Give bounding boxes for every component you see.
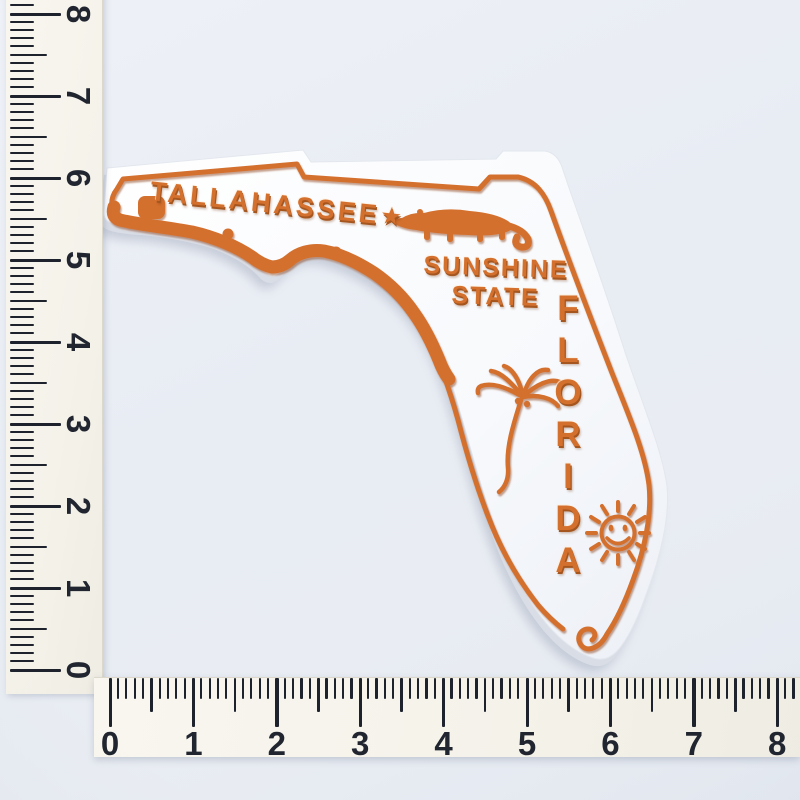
ruler-tick (10, 423, 61, 426)
ruler-tick (10, 570, 34, 572)
ruler-tick (10, 603, 34, 605)
ruler-tick (10, 619, 34, 621)
ruler-tick (10, 488, 34, 490)
ruler-tick (10, 119, 34, 121)
ruler-tick (275, 678, 278, 727)
ruler-tick (559, 678, 561, 699)
coast-bump (390, 285, 401, 296)
ruler-tick (342, 678, 344, 699)
ruler-tick (10, 529, 34, 531)
ruler-tick (400, 678, 403, 712)
ruler-tick (10, 95, 61, 98)
ruler-tick (225, 678, 227, 699)
horizontal-ruler: 012345678 (94, 677, 800, 757)
ruler-tick (109, 678, 112, 727)
ruler-tick (10, 332, 34, 334)
ruler-number: 8 (61, 0, 95, 34)
state-name-letter: I (546, 456, 590, 498)
ruler-number: 0 (90, 727, 130, 761)
ruler-tick (10, 86, 34, 88)
ruler-tick (551, 678, 553, 699)
ruler-tick (417, 678, 419, 699)
ruler-tick (309, 678, 311, 699)
ruler-tick (10, 103, 34, 105)
ruler-tick (10, 54, 47, 57)
nickname-line-2: STATE (451, 281, 540, 313)
ruler-tick (10, 185, 34, 187)
ruler-tick (10, 390, 34, 392)
ruler-tick (150, 678, 153, 712)
ruler-tick (10, 447, 34, 449)
ruler-tick (467, 678, 469, 699)
ruler-number: 2 (257, 727, 297, 761)
ruler-number: 7 (61, 76, 95, 116)
photo-stage: TALLAHASSEE★ SUNSHINE STATE FLORIDA 8765… (0, 0, 800, 800)
ruler-tick (626, 678, 628, 699)
ruler-tick (10, 439, 34, 441)
ruler-tick (10, 595, 34, 597)
ruler-tick (259, 678, 261, 699)
ruler-tick (792, 678, 794, 699)
ruler-number: 1 (61, 568, 95, 608)
ruler-tick (134, 678, 136, 699)
ruler-tick (10, 267, 34, 269)
ruler-tick (159, 678, 161, 699)
ruler-tick (10, 201, 34, 203)
ruler-tick (526, 678, 529, 727)
ruler-tick (10, 554, 34, 556)
nickname-line-1: SUNSHINE (423, 251, 569, 285)
ruler-tick (367, 678, 369, 699)
state-name-letter: L (546, 330, 590, 372)
ruler-tick (10, 4, 34, 6)
state-name-letter: F (546, 288, 590, 330)
ruler-tick (334, 678, 336, 699)
ruler-tick (10, 37, 34, 39)
ruler-tick (734, 678, 737, 712)
ruler-number: 3 (61, 404, 95, 444)
ruler-tick (10, 168, 34, 170)
ruler-tick (242, 678, 244, 699)
ruler-tick (200, 678, 202, 699)
ruler-tick (10, 291, 34, 293)
ruler-tick (10, 308, 34, 310)
ruler-tick (567, 678, 570, 712)
ruler-tick (409, 678, 411, 699)
ruler-number: 0 (61, 650, 95, 690)
ruler-tick (634, 678, 636, 699)
ruler-tick (10, 537, 34, 539)
ruler-tick (584, 678, 586, 699)
ruler-tick (392, 678, 394, 699)
ruler-tick (175, 678, 177, 699)
ruler-number: 3 (340, 727, 380, 761)
ruler-tick (509, 678, 511, 699)
ruler-tick (142, 678, 144, 699)
ruler-tick (125, 678, 127, 699)
ruler-tick (10, 652, 34, 654)
ruler-tick (659, 678, 661, 699)
ruler-tick (10, 275, 34, 277)
ruler-tick (767, 678, 769, 699)
coast-bump (223, 229, 234, 240)
ruler-number: 5 (61, 240, 95, 280)
ruler-tick (292, 678, 294, 699)
state-name-letter: R (546, 414, 590, 456)
ruler-tick (717, 678, 719, 699)
ruler-tick (10, 127, 34, 129)
ruler-number: 1 (173, 727, 213, 761)
ruler-number: 6 (61, 158, 95, 198)
ruler-tick (10, 136, 47, 139)
ruler-tick (10, 464, 47, 467)
ruler-number: 8 (757, 727, 797, 761)
ruler-tick (609, 678, 612, 727)
ruler-tick (10, 62, 34, 64)
ruler-tick (10, 431, 34, 433)
ruler-tick (601, 678, 603, 699)
ruler-tick (10, 587, 61, 590)
ruler-tick (384, 678, 386, 699)
state-name-letter: D (546, 498, 590, 540)
ruler-number: 4 (424, 727, 464, 761)
ruler-tick (10, 546, 47, 549)
ruler-tick (651, 678, 654, 712)
ruler-tick (10, 496, 34, 498)
ruler-number: 6 (590, 727, 630, 761)
ruler-tick (692, 678, 695, 727)
ruler-tick (10, 611, 34, 613)
ruler-tick (425, 678, 427, 699)
ruler-tick (10, 160, 34, 162)
ruler-tick (10, 521, 34, 523)
ruler-tick (751, 678, 753, 699)
ruler-tick (500, 678, 502, 699)
state-name-letter: A (546, 540, 590, 582)
ruler-tick (10, 283, 34, 285)
ruler-tick (10, 259, 61, 262)
ruler-tick (10, 636, 34, 638)
ruler-tick (475, 678, 477, 699)
ruler-tick (10, 480, 34, 482)
ruler-tick (592, 678, 594, 699)
ruler-tick (442, 678, 445, 727)
ruler-tick (542, 678, 544, 699)
ruler-tick (10, 250, 34, 252)
ruler-tick (10, 300, 47, 303)
ruler-tick (167, 678, 169, 699)
ruler-tick (10, 505, 61, 508)
ruler-tick (10, 111, 34, 113)
ruler-tick (676, 678, 678, 699)
state-name-letter: O (546, 372, 590, 414)
ruler-number: 5 (507, 727, 547, 761)
ruler-tick (450, 678, 452, 699)
ruler-tick (192, 678, 195, 727)
ruler-tick (284, 678, 286, 699)
ruler-tick (10, 628, 47, 631)
ruler-tick (10, 562, 34, 564)
ruler-number: 4 (61, 322, 95, 362)
ruler-tick (10, 373, 34, 375)
ruler-tick (10, 349, 34, 351)
ruler-tick (117, 678, 119, 699)
ruler-tick (10, 365, 34, 367)
ruler-tick (217, 678, 219, 699)
ruler-tick (325, 678, 327, 699)
state-name-vertical: FLORIDA (546, 288, 590, 582)
ruler-tick (434, 678, 436, 699)
ruler-tick (10, 472, 34, 474)
ruler-tick (10, 242, 34, 244)
ruler-tick (267, 678, 269, 699)
ruler-tick (234, 678, 237, 712)
ruler-tick (10, 209, 34, 211)
ruler-tick (10, 152, 34, 154)
ruler-tick (375, 678, 377, 699)
ruler-tick (317, 678, 320, 712)
ruler-tick (10, 78, 34, 80)
ruler-tick (10, 455, 34, 457)
ruler-tick (10, 644, 34, 646)
ruler-tick (576, 678, 578, 699)
ruler-tick (742, 678, 744, 699)
ruler-tick (10, 357, 34, 359)
ruler-tick (10, 144, 34, 146)
ruler-tick (10, 398, 34, 400)
ruler-tick (10, 13, 61, 16)
ruler-tick (359, 678, 362, 727)
ruler-number: 7 (674, 727, 714, 761)
ruler-tick (534, 678, 536, 699)
ruler-tick (517, 678, 519, 699)
ruler-tick (617, 678, 619, 699)
ruler-tick (10, 218, 47, 221)
ruler-tick (184, 678, 186, 699)
ruler-tick (10, 70, 34, 72)
ruler-tick (776, 678, 779, 727)
ruler-tick (10, 324, 34, 326)
ruler-tick (10, 406, 34, 408)
ruler-tick (10, 29, 34, 31)
ruler-tick (10, 193, 34, 195)
ruler-tick (10, 226, 34, 228)
ruler-tick (10, 316, 34, 318)
ruler-tick (667, 678, 669, 699)
ruler-tick (10, 234, 34, 236)
ruler-tick (10, 414, 34, 416)
ruler-tick (10, 578, 34, 580)
ruler-tick (709, 678, 711, 699)
ruler-number: 2 (61, 486, 95, 526)
ruler-tick (209, 678, 211, 699)
ruler-tick (759, 678, 761, 699)
ruler-tick (10, 177, 61, 180)
ruler-tick (300, 678, 302, 699)
ruler-tick (642, 678, 644, 699)
ruler-tick (250, 678, 252, 699)
ruler-tick (350, 678, 352, 699)
ruler-tick (484, 678, 487, 712)
ruler-tick (701, 678, 703, 699)
coast-bump (331, 247, 342, 258)
capital-star-icon: ★ (380, 204, 401, 229)
ruler-tick (10, 513, 34, 515)
ruler-tick (10, 45, 34, 47)
ruler-tick (726, 678, 728, 699)
ruler-tick (10, 382, 47, 385)
ruler-tick (10, 21, 34, 23)
vertical-ruler: 876543210 (6, 0, 103, 694)
ruler-tick (10, 669, 61, 672)
ruler-tick (784, 678, 786, 699)
ruler-tick (459, 678, 461, 699)
ruler-tick (492, 678, 494, 699)
ruler-tick (684, 678, 686, 699)
ruler-tick (10, 341, 61, 344)
ruler-tick (10, 660, 34, 662)
